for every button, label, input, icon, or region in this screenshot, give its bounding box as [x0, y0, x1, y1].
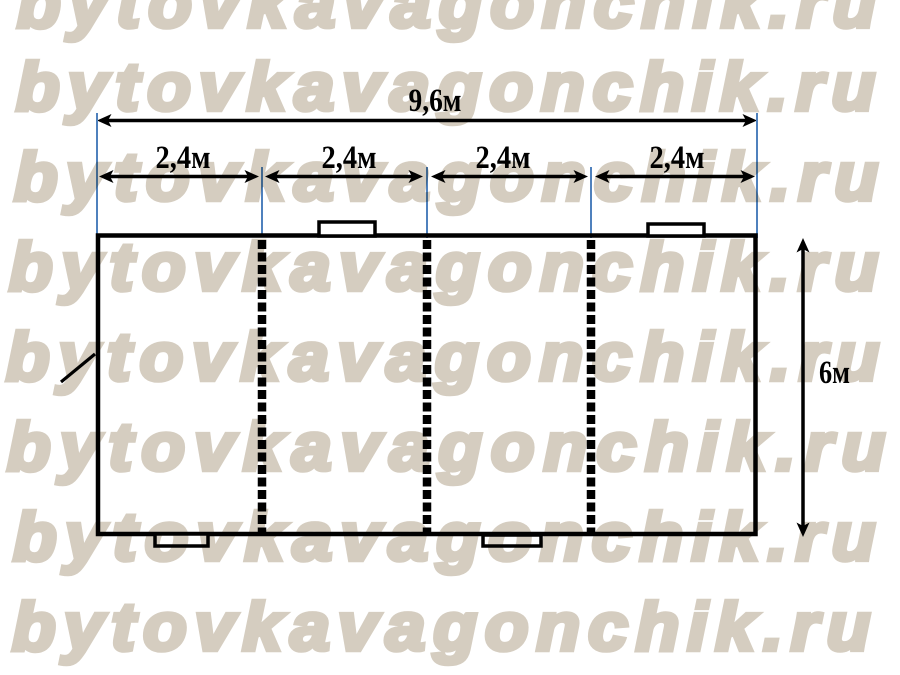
- svg-text:bytovkavagonchik.ru: bytovkavagonchik.ru: [12, 589, 878, 665]
- svg-text:bytovkavagonchik.ru: bytovkavagonchik.ru: [16, 49, 883, 125]
- svg-text:bytovkavagonchik.ru: bytovkavagonchik.ru: [14, 139, 886, 215]
- svg-text:bytovkavagonchik.ru: bytovkavagonchik.ru: [9, 229, 887, 305]
- svg-text:bytovkavagonchik.ru: bytovkavagonchik.ru: [17, 0, 884, 42]
- svg-text:bytovkavagonchik.ru: bytovkavagonchik.ru: [7, 409, 894, 485]
- svg-text:bytovkavagonchik.ru: bytovkavagonchik.ru: [6, 319, 888, 395]
- svg-text:bytovkavagonchik.ru: bytovkavagonchik.ru: [13, 499, 883, 575]
